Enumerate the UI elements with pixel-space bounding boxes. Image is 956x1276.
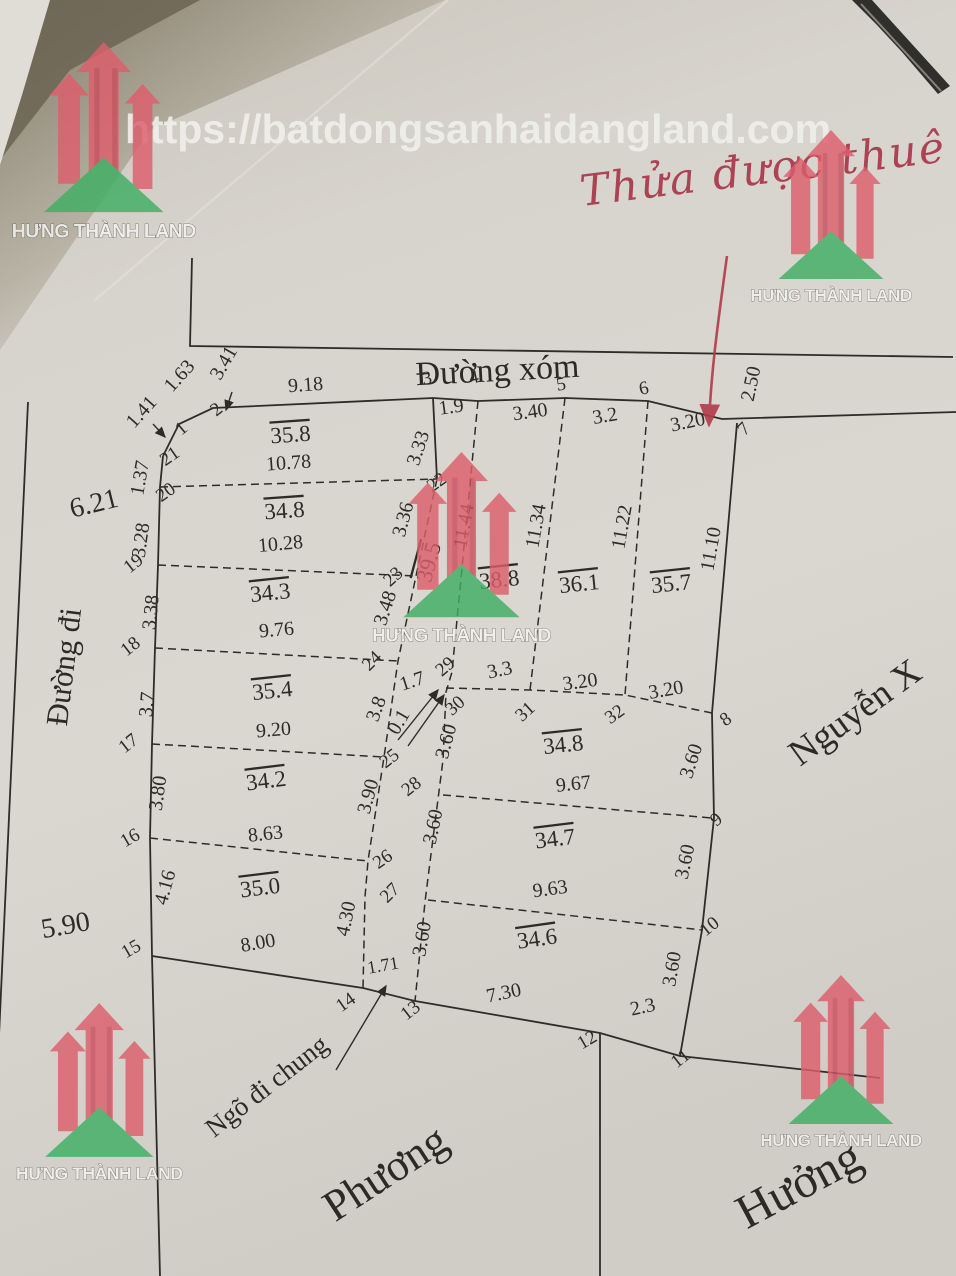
brand-logo-text: HƯNG THÀNH LAND: [750, 286, 911, 305]
measurement-label: 9.20: [255, 718, 292, 743]
measurement-label: 3.2: [591, 403, 619, 429]
measurement-label: 10.78: [265, 450, 311, 475]
parcel-area-label: 34.8: [542, 730, 585, 759]
parcel-area-label: 35.0: [239, 873, 282, 903]
measurement-label: 9.18: [287, 373, 323, 397]
measurement-label: 9.76: [258, 618, 295, 643]
brand-logo-text: HƯNG THÀNH LAND: [12, 219, 196, 242]
parcel-area-label: 35.8: [270, 421, 312, 449]
parcel-area-label: 34.8: [264, 497, 306, 525]
cadastral-plan-photo: 35.834.834.335.434.235.038.836.135.734.8…: [0, 0, 956, 1276]
measurement-label: 3.7: [135, 691, 159, 718]
parcel-area-label: 36.1: [558, 569, 601, 598]
measurement-label: 3.38: [138, 594, 164, 631]
measurement-label: 10.28: [257, 531, 304, 557]
measurement-label: 9.67: [555, 771, 592, 797]
parcel-area-label: 34.7: [534, 824, 577, 854]
parcel-area-label: 34.2: [245, 766, 288, 796]
brand-logo-text: HƯNG THÀNH LAND: [372, 625, 551, 646]
parcel-area-label: 35.7: [650, 569, 693, 598]
parcel-area-label: 35.4: [251, 676, 294, 705]
watermark-url: https://batdongsanhaidangland.com: [125, 106, 831, 152]
measurement-label: 8.63: [247, 821, 284, 847]
brand-logo-text: HƯNG THÀNH LAND: [760, 1131, 921, 1150]
parcel-area-label: 34.3: [249, 578, 292, 607]
measurement-label: 1.9: [437, 394, 465, 419]
brand-logo-text: HƯNG THÀNH LAND: [16, 1163, 182, 1184]
